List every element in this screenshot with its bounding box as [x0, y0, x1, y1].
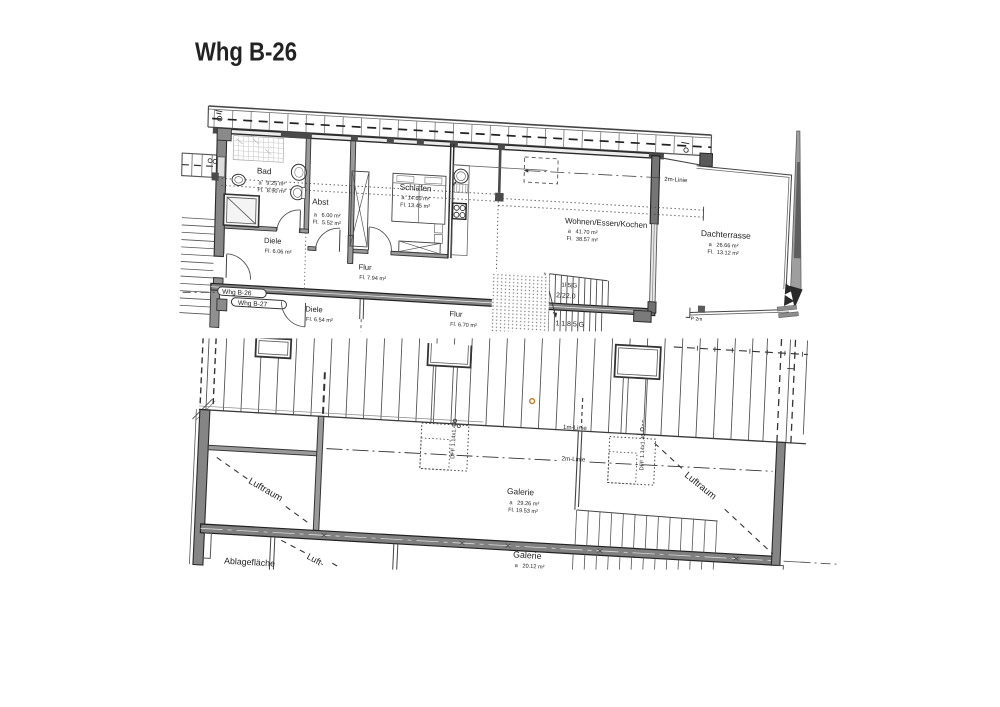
svg-text:2m-Linie: 2m-Linie	[561, 455, 586, 463]
svg-text:Bad: Bad	[257, 166, 272, 176]
svg-text:Galerie: Galerie	[513, 549, 542, 561]
svg-text:1l 5|G: 1l 5|G	[561, 283, 577, 290]
svg-text:P 2m: P 2m	[691, 316, 703, 323]
svg-text:Abst: Abst	[312, 197, 329, 207]
svg-text:1m-Linie: 1m-Linie	[563, 424, 588, 432]
svg-text:Whg B-26: Whg B-26	[195, 39, 297, 67]
svg-text:Diele: Diele	[305, 304, 323, 314]
svg-text:Galerie: Galerie	[507, 486, 535, 498]
svg-text:Flur: Flur	[449, 309, 463, 319]
svg-text:Flur: Flur	[358, 262, 372, 272]
svg-text:Diele: Diele	[264, 236, 282, 246]
svg-text:Schlafen: Schlafen	[400, 183, 433, 194]
svg-text:2/22.0: 2/22.0	[556, 292, 576, 300]
